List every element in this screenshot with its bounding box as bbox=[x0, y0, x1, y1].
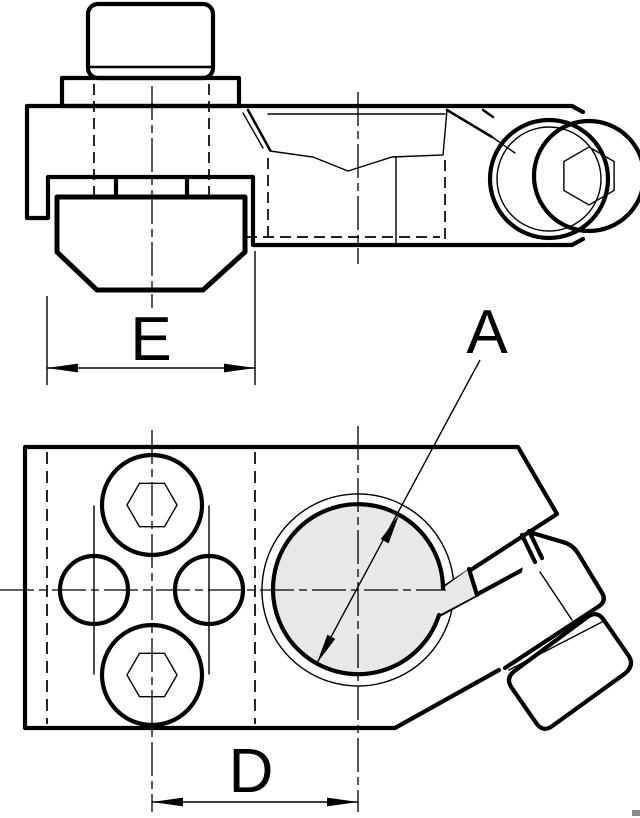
arrowhead-e-left bbox=[47, 364, 78, 373]
jaw-pad bbox=[57, 197, 245, 290]
knob-flange bbox=[62, 78, 239, 106]
socket-screw-front bbox=[490, 120, 640, 238]
chamfer-facet-right2 bbox=[483, 110, 493, 117]
dimension-d: D bbox=[152, 737, 358, 806]
page-edge-artifact bbox=[632, 810, 640, 816]
body-outline-front bbox=[27, 106, 583, 245]
chamfer-facet-right bbox=[447, 110, 492, 137]
arrowhead-e-right bbox=[224, 364, 255, 373]
technical-drawing-canvas: E bbox=[0, 0, 640, 818]
arrowhead-d-right bbox=[327, 798, 358, 807]
clamp-drawing: E bbox=[0, 0, 640, 818]
label-e: E bbox=[130, 305, 171, 374]
label-d: D bbox=[229, 737, 274, 806]
arrowhead-d-left bbox=[152, 798, 183, 807]
top-view bbox=[0, 426, 635, 812]
label-a: A bbox=[466, 298, 508, 367]
bore-pocket-fill bbox=[273, 504, 477, 674]
front-view bbox=[27, 4, 640, 308]
chamfer-facet-left bbox=[248, 110, 270, 150]
